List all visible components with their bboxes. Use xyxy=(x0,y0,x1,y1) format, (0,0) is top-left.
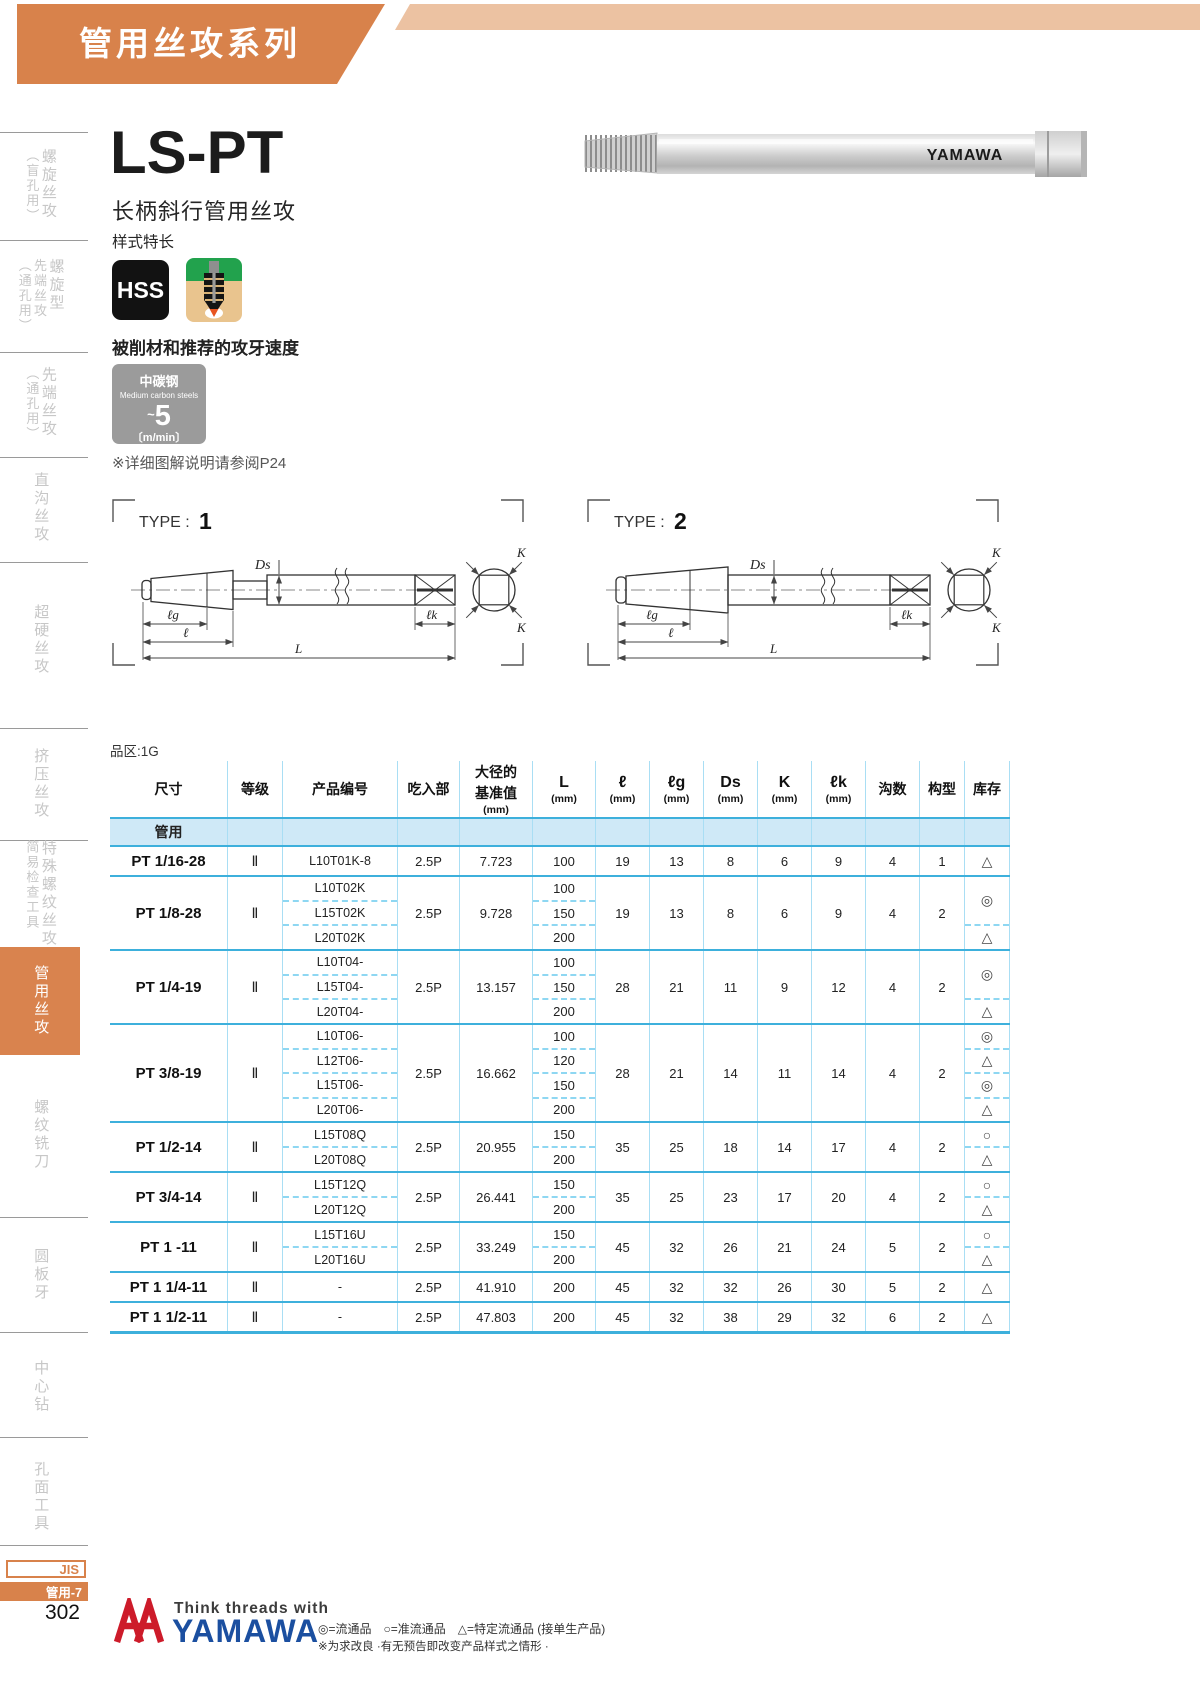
cell-overall-length-value: 100 xyxy=(533,1025,595,1048)
cell-grade: Ⅱ xyxy=(228,1223,283,1271)
through-hole-tap-icon xyxy=(186,258,242,327)
sidebar-item-label: 孔面工具 xyxy=(31,1461,50,1533)
sidebar-item-3: 先端丝攻（通孔用） xyxy=(0,367,80,442)
sidebar-divider xyxy=(0,132,88,133)
cell-major-diameter: 9.728 xyxy=(460,877,533,949)
cell-overall-length: 100150200 xyxy=(533,951,596,1023)
size-group-row: PT 1 -11ⅡL15T16UL20T16U2.5P33.2491502004… xyxy=(110,1223,1010,1273)
sidebar-item-1: 螺旋丝攻（盲孔用） xyxy=(0,149,80,224)
sidebar-item-text: 简易检查工具 xyxy=(24,840,38,948)
sidebar-item-8: 管用丝攻 xyxy=(0,947,80,1055)
stock-symbol-cell: △ xyxy=(965,847,1009,875)
type2-diagram: TYPE : 2 Ds ℓg ℓ L xyxy=(578,490,1008,680)
stock-symbol: △ xyxy=(982,1201,993,1218)
cell-overall-length-value: 150 xyxy=(533,1072,595,1097)
ds-dimension-label: Ds xyxy=(254,558,271,573)
header-unit: (mm) xyxy=(610,793,636,805)
cell-overall-length: 100 xyxy=(533,847,596,875)
cell-shank-diameter: 32 xyxy=(704,1273,758,1301)
table-header-cell: 大径的基准值(mm) xyxy=(460,761,533,817)
stock-symbol-legend: ◎=流通品 ○=准流通品 △=特定流通品 (接单生产品) xyxy=(318,1620,605,1637)
sidebar-item-5: 超硬丝攻 xyxy=(0,604,80,676)
cell-shank-diameter: 14 xyxy=(704,1025,758,1121)
product-zone-label: 品区:1G xyxy=(110,740,159,760)
cell-major-diameter: 26.441 xyxy=(460,1173,533,1221)
cell-square-width: 21 xyxy=(758,1223,812,1271)
cell-chamfer: 2.5P xyxy=(398,1303,460,1331)
table-header-cell: 产品编号 xyxy=(283,761,398,817)
cell-overall-length-value: 200 xyxy=(533,1146,595,1171)
size-group-row: PT 1/8-28ⅡL10T02KL15T02KL20T02K2.5P9.728… xyxy=(110,877,1010,951)
cell-overall-length-value: 200 xyxy=(533,1097,595,1122)
sidebar-item-text: 超硬丝攻 xyxy=(32,604,49,676)
cell-product-code: - xyxy=(283,1273,398,1301)
brand-wordmark: YAMAWA xyxy=(172,1613,319,1650)
l-dimension-label: ℓ xyxy=(183,625,189,640)
header-unit: (mm) xyxy=(772,793,798,805)
sidebar-item-4: 直沟丝攻 xyxy=(0,472,80,544)
sidebar-item-9: 螺纹铣刀 xyxy=(0,1099,80,1171)
speed-unit: 〔m/min〕 xyxy=(112,429,206,445)
cell-size: PT 1 -11 xyxy=(110,1223,228,1271)
k-dimension-label-bottom: K xyxy=(991,620,1002,635)
cell-shank-diameter: 23 xyxy=(704,1173,758,1221)
cell-square-length: 9 xyxy=(812,877,866,949)
cell-size: PT 1 1/2-11 xyxy=(110,1303,228,1331)
cell-overall-length-value: 200 xyxy=(533,1196,595,1221)
cell-overall-length: 150200 xyxy=(533,1223,596,1271)
type2-label: TYPE : xyxy=(614,514,665,531)
cell-overall-length-value: 200 xyxy=(533,1246,595,1271)
cell-overall-length: 200 xyxy=(533,1273,596,1301)
cell-flute-count: 4 xyxy=(866,1173,920,1221)
cell-product-code-value: L20T12Q xyxy=(283,1196,397,1221)
sidebar-divider xyxy=(0,240,88,241)
cell-gauge-length: 21 xyxy=(650,951,704,1023)
cell-grade: Ⅱ xyxy=(228,877,283,949)
sidebar-item-text: 螺纹铣刀 xyxy=(32,1099,49,1171)
cell-overall-length: 200 xyxy=(533,1303,596,1331)
stock-symbol: ◎ xyxy=(981,1028,993,1045)
header-title: L xyxy=(559,774,569,792)
size-group-row: PT 1 1/4-11Ⅱ-2.5P41.910200453232263052△ xyxy=(110,1273,1010,1303)
lk-dimension-label: ℓk xyxy=(426,607,437,622)
cell-stock: ◎△ xyxy=(965,951,1010,1023)
cell-major-diameter: 13.157 xyxy=(460,951,533,1023)
cell-stock: ◎△ xyxy=(965,877,1010,949)
size-group-row: PT 3/8-19ⅡL10T06-L12T06-L15T06-L20T06-2.… xyxy=(110,1025,1010,1123)
stock-symbol-cell: △ xyxy=(965,1048,1009,1073)
cell-thread-length: 35 xyxy=(596,1123,650,1171)
sidebar-item-label: 挤压丝攻 xyxy=(31,748,50,820)
table-group-label-row: 管用 xyxy=(110,817,1010,847)
sidebar-item-label: 螺纹铣刀 xyxy=(31,1099,50,1171)
product-name: 长柄斜行管用丝攻 xyxy=(112,194,296,226)
cell-gauge-length: 13 xyxy=(650,877,704,949)
cell-product-code-value: L10T02K xyxy=(283,877,397,900)
stock-symbol: △ xyxy=(982,1279,993,1296)
logo-mark-svg xyxy=(110,1598,168,1646)
cell-construction-type: 2 xyxy=(920,877,965,949)
cell-flute-count: 4 xyxy=(866,951,920,1023)
cell-grade: Ⅱ xyxy=(228,1303,283,1331)
table-header-cell: K(mm) xyxy=(758,761,812,817)
sidebar-item-label: 管用丝攻 xyxy=(31,965,50,1037)
cell-stock: △ xyxy=(965,847,1010,875)
cell-product-code-value: L20T16U xyxy=(283,1246,397,1271)
cell-square-width: 26 xyxy=(758,1273,812,1301)
cell-shank-diameter: 26 xyxy=(704,1223,758,1271)
tap-pictogram-svg xyxy=(186,258,242,322)
cell-square-width: 9 xyxy=(758,951,812,1023)
cell-square-width: 11 xyxy=(758,1025,812,1121)
sidebar-item-7: 特殊螺纹丝攻简易检查工具 xyxy=(0,840,80,948)
ds-dimension-label: Ds xyxy=(749,558,766,573)
type1-label: TYPE : xyxy=(139,514,190,531)
size-group-row: PT 1/16-28ⅡL10T01K-82.5P7.72310019138694… xyxy=(110,847,1010,877)
sidebar-divider xyxy=(0,728,88,729)
cell-overall-length: 100150200 xyxy=(533,877,596,949)
group-label-empty-cell xyxy=(758,819,812,845)
cell-overall-length-value: 150 xyxy=(533,1173,595,1196)
cell-product-code-value: L20T08Q xyxy=(283,1146,397,1171)
group-label-empty-cell xyxy=(283,819,398,845)
cell-square-length: 30 xyxy=(812,1273,866,1301)
diagram-reference-note: ※详细图解说明请参阅P24 xyxy=(112,452,286,473)
sidebar-item-text: （通孔用） xyxy=(16,259,30,334)
group-label-empty-cell xyxy=(866,819,920,845)
cell-grade: Ⅱ xyxy=(228,1123,283,1171)
cell-overall-length-value: 200 xyxy=(533,924,595,949)
cell-gauge-length: 25 xyxy=(650,1173,704,1221)
section-tag-label: 管用-7 xyxy=(46,1582,82,1601)
stock-symbol-cell: △ xyxy=(965,1303,1009,1331)
size-group-row: PT 1 1/2-11Ⅱ-2.5P47.803200453238293262△ xyxy=(110,1303,1010,1334)
cell-overall-length-value: 150 xyxy=(533,900,595,925)
cell-square-length: 9 xyxy=(812,847,866,875)
cell-chamfer: 2.5P xyxy=(398,1123,460,1171)
cell-chamfer: 2.5P xyxy=(398,1273,460,1301)
cell-product-code-value: L20T06- xyxy=(283,1097,397,1122)
material-name-en: Medium carbon steels xyxy=(112,391,206,400)
cell-flute-count: 6 xyxy=(866,1303,920,1331)
sidebar-item-10: 圆板牙 xyxy=(0,1248,80,1302)
header-title: ℓk xyxy=(830,774,847,792)
sidebar-item-label: 中心钻 xyxy=(31,1360,50,1414)
cell-size: PT 1/4-19 xyxy=(110,951,228,1023)
cell-square-length: 12 xyxy=(812,951,866,1023)
l-dimension-label: ℓ xyxy=(668,625,674,640)
cell-overall-length-value: 100 xyxy=(533,877,595,900)
stock-symbol: ○ xyxy=(983,1227,991,1243)
table-header-cell: 构型 xyxy=(920,761,965,817)
table-header-cell: Ds(mm) xyxy=(704,761,758,817)
type2-diagram-svg: TYPE : 2 Ds ℓg ℓ L xyxy=(578,490,1008,675)
cell-product-code: L10T04-L15T04-L20T04- xyxy=(283,951,398,1023)
style-feature-label: 样式特长 xyxy=(112,230,174,252)
stock-symbol: ◎ xyxy=(981,1077,993,1094)
cell-size: PT 3/4-14 xyxy=(110,1173,228,1221)
group-label-empty-cell xyxy=(460,819,533,845)
size-group-row: PT 1/2-14ⅡL15T08QL20T08Q2.5P20.955150200… xyxy=(110,1123,1010,1173)
stock-symbol-cell: ◎ xyxy=(965,1072,1009,1097)
cell-shank-diameter: 8 xyxy=(704,877,758,949)
cell-chamfer: 2.5P xyxy=(398,1223,460,1271)
cell-construction-type: 2 xyxy=(920,1025,965,1121)
cell-product-code-value: L15T04- xyxy=(283,974,397,999)
cell-size: PT 3/8-19 xyxy=(110,1025,228,1121)
stock-symbol-cell: △ xyxy=(965,1273,1009,1301)
header-title: 尺寸 xyxy=(155,779,183,799)
cell-square-length: 32 xyxy=(812,1303,866,1331)
group-label-empty-cell xyxy=(533,819,596,845)
lk-dimension-label: ℓk xyxy=(901,607,912,622)
jis-badge: JIS xyxy=(6,1560,86,1578)
cell-product-code-value: L15T06- xyxy=(283,1072,397,1097)
cell-flute-count: 5 xyxy=(866,1223,920,1271)
sidebar-item-label: 螺旋丝攻（盲孔用） xyxy=(23,149,57,224)
cell-grade: Ⅱ xyxy=(228,951,283,1023)
lg-dimension-label: ℓg xyxy=(167,607,179,622)
cell-construction-type: 1 xyxy=(920,847,965,875)
photo-brand-text: YAMAWA xyxy=(927,147,1004,164)
group-label-empty-cell xyxy=(920,819,965,845)
cell-square-length: 17 xyxy=(812,1123,866,1171)
cell-construction-type: 2 xyxy=(920,1303,965,1331)
speed-number: 5 xyxy=(155,400,171,432)
header-title: ℓ xyxy=(619,774,627,792)
header-unit: (mm) xyxy=(826,793,852,805)
cell-product-code: L15T08QL20T08Q xyxy=(283,1123,398,1171)
table-header-cell: ℓk(mm) xyxy=(812,761,866,817)
cell-overall-length-value: 120 xyxy=(533,1048,595,1073)
table-header-row: 尺寸等级产品编号吃入部大径的基准值(mm)L(mm)ℓ(mm)ℓg(mm)Ds(… xyxy=(110,761,1010,817)
sidebar-divider xyxy=(0,352,88,353)
L-dimension-label: L xyxy=(294,641,302,656)
cell-major-diameter: 41.910 xyxy=(460,1273,533,1301)
series-banner-title: 管用丝攻系列 xyxy=(17,4,385,84)
cell-major-diameter: 33.249 xyxy=(460,1223,533,1271)
cell-product-code: L15T12QL20T12Q xyxy=(283,1173,398,1221)
hss-badge-label: HSS xyxy=(117,277,164,304)
group-label-empty-cell xyxy=(704,819,758,845)
cell-construction-type: 2 xyxy=(920,1273,965,1301)
size-group-row: PT 3/4-14ⅡL15T12QL20T12Q2.5P26.441150200… xyxy=(110,1173,1010,1223)
stock-symbol: △ xyxy=(982,1309,993,1326)
stock-symbol-cell: △ xyxy=(965,924,1009,949)
stock-symbol-cell: △ xyxy=(965,998,1009,1023)
stock-symbol-cell: ○ xyxy=(965,1123,1009,1146)
stock-symbol: ○ xyxy=(983,1177,991,1193)
sidebar-item-2: 螺旋型先端丝攻（通孔用） xyxy=(0,259,80,334)
stock-symbol-cell: ◎ xyxy=(965,951,1009,998)
cell-grade: Ⅱ xyxy=(228,1273,283,1301)
cell-product-code-value: L15T02K xyxy=(283,900,397,925)
sidebar-divider xyxy=(0,1437,88,1438)
table-header-cell: ℓ(mm) xyxy=(596,761,650,817)
type1-diagram: TYPE : 1 Ds ℓg ℓ xyxy=(103,490,533,680)
cell-flute-count: 5 xyxy=(866,1273,920,1301)
cell-construction-type: 2 xyxy=(920,1123,965,1171)
stock-symbol-cell: ◎ xyxy=(965,877,1009,924)
cell-stock: ○△ xyxy=(965,1173,1010,1221)
type2-number: 2 xyxy=(674,508,687,534)
cell-flute-count: 4 xyxy=(866,847,920,875)
section-tag: 管用-7 xyxy=(0,1582,88,1601)
cell-major-diameter: 7.723 xyxy=(460,847,533,875)
group-label-empty-cell xyxy=(398,819,460,845)
sidebar-item-11: 中心钻 xyxy=(0,1360,80,1414)
sidebar-divider xyxy=(0,1217,88,1218)
k-dimension-label-top: K xyxy=(991,545,1002,560)
catalog-page: 管用丝攻系列 螺旋丝攻（盲孔用）螺旋型先端丝攻（通孔用）先端丝攻（通孔用）直沟丝… xyxy=(0,0,1200,1697)
cell-construction-type: 2 xyxy=(920,1173,965,1221)
header-title: 产品编号 xyxy=(312,779,368,799)
k-dimension-label-top: K xyxy=(516,545,527,560)
header-title: 吃入部 xyxy=(408,779,450,799)
k-dimension-label-bottom: K xyxy=(516,620,527,635)
sidebar-item-label: 先端丝攻（通孔用） xyxy=(23,367,57,442)
cell-size: PT 1 1/4-11 xyxy=(110,1273,228,1301)
cell-product-code: L10T02KL15T02KL20T02K xyxy=(283,877,398,949)
cell-gauge-length: 13 xyxy=(650,847,704,875)
cell-thread-length: 28 xyxy=(596,1025,650,1121)
cell-overall-length: 100120150200 xyxy=(533,1025,596,1121)
header-title: 沟数 xyxy=(879,779,907,799)
cell-grade: Ⅱ xyxy=(228,847,283,875)
cell-product-code-value: L20T04- xyxy=(283,998,397,1023)
cell-product-code-value: L15T08Q xyxy=(283,1123,397,1146)
stock-symbol-cell: △ xyxy=(965,1146,1009,1171)
cell-major-diameter: 20.955 xyxy=(460,1123,533,1171)
series-banner: 管用丝攻系列 xyxy=(17,4,385,84)
sidebar-item-label: 直沟丝攻 xyxy=(31,472,50,544)
cell-shank-diameter: 38 xyxy=(704,1303,758,1331)
header-unit: (mm) xyxy=(551,793,577,805)
stock-symbol-cell: △ xyxy=(965,1246,1009,1271)
cell-square-width: 6 xyxy=(758,847,812,875)
cell-construction-type: 2 xyxy=(920,1223,965,1271)
sidebar-item-text: （通孔用） xyxy=(24,367,38,442)
table-header-cell: 沟数 xyxy=(866,761,920,817)
cell-size: PT 1/2-14 xyxy=(110,1123,228,1171)
cell-flute-count: 4 xyxy=(866,877,920,949)
sidebar-item-label: 特殊螺纹丝攻简易检查工具 xyxy=(23,840,57,948)
L-dimension-label: L xyxy=(769,641,777,656)
cell-product-code-value: L20T02K xyxy=(283,924,397,949)
cell-thread-length: 28 xyxy=(596,951,650,1023)
cell-product-code: L10T01K-8 xyxy=(283,847,398,875)
cell-major-diameter: 47.803 xyxy=(460,1303,533,1331)
product-photo: YAMAWA xyxy=(565,110,1105,211)
group-label-empty-cell xyxy=(228,819,283,845)
specification-table: 尺寸等级产品编号吃入部大径的基准值(mm)L(mm)ℓ(mm)ℓg(mm)Ds(… xyxy=(110,761,1010,1334)
stock-symbol-cell: △ xyxy=(965,1196,1009,1221)
group-label-empty-cell xyxy=(812,819,866,845)
type1-number: 1 xyxy=(199,508,212,534)
cell-overall-length-value: 150 xyxy=(533,974,595,999)
cell-flute-count: 4 xyxy=(866,1025,920,1121)
cell-size: PT 1/8-28 xyxy=(110,877,228,949)
sidebar-item-text: 管用丝攻 xyxy=(32,965,49,1037)
cell-product-code-value: L15T16U xyxy=(283,1223,397,1246)
material-speed-card: 中碳钢 Medium carbon steels ~5 〔m/min〕 xyxy=(112,364,206,444)
cell-thread-length: 35 xyxy=(596,1173,650,1221)
stock-symbol-cell: ○ xyxy=(965,1223,1009,1246)
cell-gauge-length: 25 xyxy=(650,1123,704,1171)
sidebar-divider xyxy=(0,1545,88,1546)
cell-shank-diameter: 8 xyxy=(704,847,758,875)
cell-overall-length: 150200 xyxy=(533,1173,596,1221)
sidebar-divider xyxy=(0,562,88,563)
stock-symbol: △ xyxy=(982,929,993,946)
header-title: 大径的 xyxy=(475,762,517,782)
header-unit: (mm) xyxy=(483,804,509,816)
table-header-cell: 等级 xyxy=(228,761,283,817)
table-header-cell: ℓg(mm) xyxy=(650,761,704,817)
sidebar-item-text: 先端丝攻 xyxy=(39,367,56,442)
cell-square-width: 17 xyxy=(758,1173,812,1221)
size-group-row: PT 1/4-19ⅡL10T04-L15T04-L20T04-2.5P13.15… xyxy=(110,951,1010,1025)
jis-badge-label: JIS xyxy=(59,1562,79,1577)
cell-square-width: 6 xyxy=(758,877,812,949)
header-title: ℓg xyxy=(668,774,686,792)
stock-symbol-cell: △ xyxy=(965,1097,1009,1122)
cell-overall-length: 150200 xyxy=(533,1123,596,1171)
cell-gauge-length: 21 xyxy=(650,1025,704,1121)
cell-gauge-length: 32 xyxy=(650,1303,704,1331)
cell-thread-length: 45 xyxy=(596,1273,650,1301)
cell-thread-length: 45 xyxy=(596,1303,650,1331)
cell-square-width: 14 xyxy=(758,1123,812,1171)
sidebar-divider xyxy=(0,1332,88,1333)
banner-accent-strip xyxy=(395,4,1200,30)
stock-symbol: △ xyxy=(982,853,993,870)
product-model-title: LS-PT xyxy=(110,118,283,187)
cell-product-code-value: L15T12Q xyxy=(283,1173,397,1196)
sidebar-item-text: 孔面工具 xyxy=(32,1461,49,1533)
group-label-empty-cell xyxy=(596,819,650,845)
page-number: 302 xyxy=(0,1601,88,1625)
stock-symbol: ◎ xyxy=(981,966,993,983)
table-header-cell: 库存 xyxy=(965,761,1010,817)
sidebar-item-label: 圆板牙 xyxy=(31,1248,50,1302)
sidebar-item-text: 螺旋型 xyxy=(47,259,64,334)
header-title: 构型 xyxy=(928,779,956,799)
disclaimer-note: ※为求改良 ·有无预告即改变产品样式之情形 · xyxy=(318,1638,549,1654)
lg-dimension-label: ℓg xyxy=(646,607,658,622)
sidebar-item-text: 中心钻 xyxy=(32,1360,49,1414)
cell-gauge-length: 32 xyxy=(650,1273,704,1301)
sidebar-item-text: 圆板牙 xyxy=(32,1248,49,1302)
cell-thread-length: 45 xyxy=(596,1223,650,1271)
table-header-cell: 吃入部 xyxy=(398,761,460,817)
cell-stock: ○△ xyxy=(965,1123,1010,1171)
header-title: 等级 xyxy=(241,779,269,799)
cell-product-code: L10T06-L12T06-L15T06-L20T06- xyxy=(283,1025,398,1121)
cell-product-code-value: L10T04- xyxy=(283,951,397,974)
speed-section-heading: 被削材和推荐的攻牙速度 xyxy=(112,334,299,359)
header-unit: (mm) xyxy=(718,793,744,805)
stock-symbol: △ xyxy=(982,1251,993,1268)
stock-symbol-cell: ◎ xyxy=(965,1025,1009,1048)
sidebar-item-text: 挤压丝攻 xyxy=(32,748,49,820)
cell-stock: △ xyxy=(965,1273,1010,1301)
cell-overall-length-value: 150 xyxy=(533,1223,595,1246)
stock-symbol: △ xyxy=(982,1151,993,1168)
sidebar-item-label: 螺旋型先端丝攻（通孔用） xyxy=(15,259,64,334)
group-label-empty-cell xyxy=(650,819,704,845)
